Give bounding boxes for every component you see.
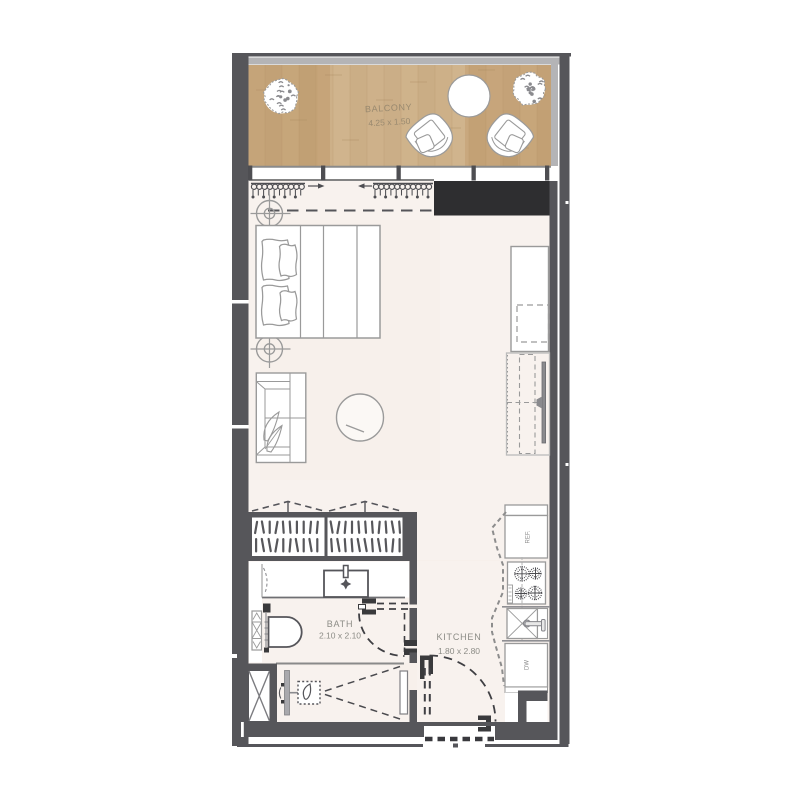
svg-text:2.10 x 2.10: 2.10 x 2.10	[319, 631, 361, 641]
svg-text:DW: DW	[525, 660, 531, 670]
svg-text:REF.: REF.	[526, 530, 532, 543]
svg-text:1.80 x 2.80: 1.80 x 2.80	[438, 646, 480, 656]
svg-text:BATH: BATH	[327, 619, 354, 629]
svg-text:KITCHEN: KITCHEN	[436, 632, 481, 642]
